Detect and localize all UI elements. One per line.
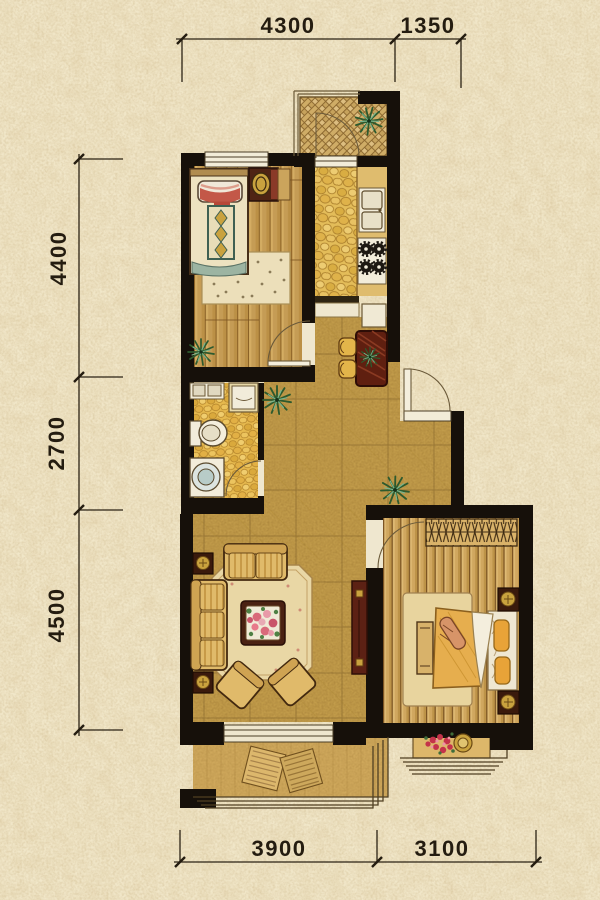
svg-text:2700: 2700 xyxy=(44,416,69,471)
svg-text:4500: 4500 xyxy=(44,588,69,643)
svg-text:3100: 3100 xyxy=(415,836,470,861)
svg-text:1350: 1350 xyxy=(401,13,456,38)
svg-text:4300: 4300 xyxy=(261,13,316,38)
svg-text:3900: 3900 xyxy=(252,836,307,861)
svg-text:4400: 4400 xyxy=(46,231,71,286)
